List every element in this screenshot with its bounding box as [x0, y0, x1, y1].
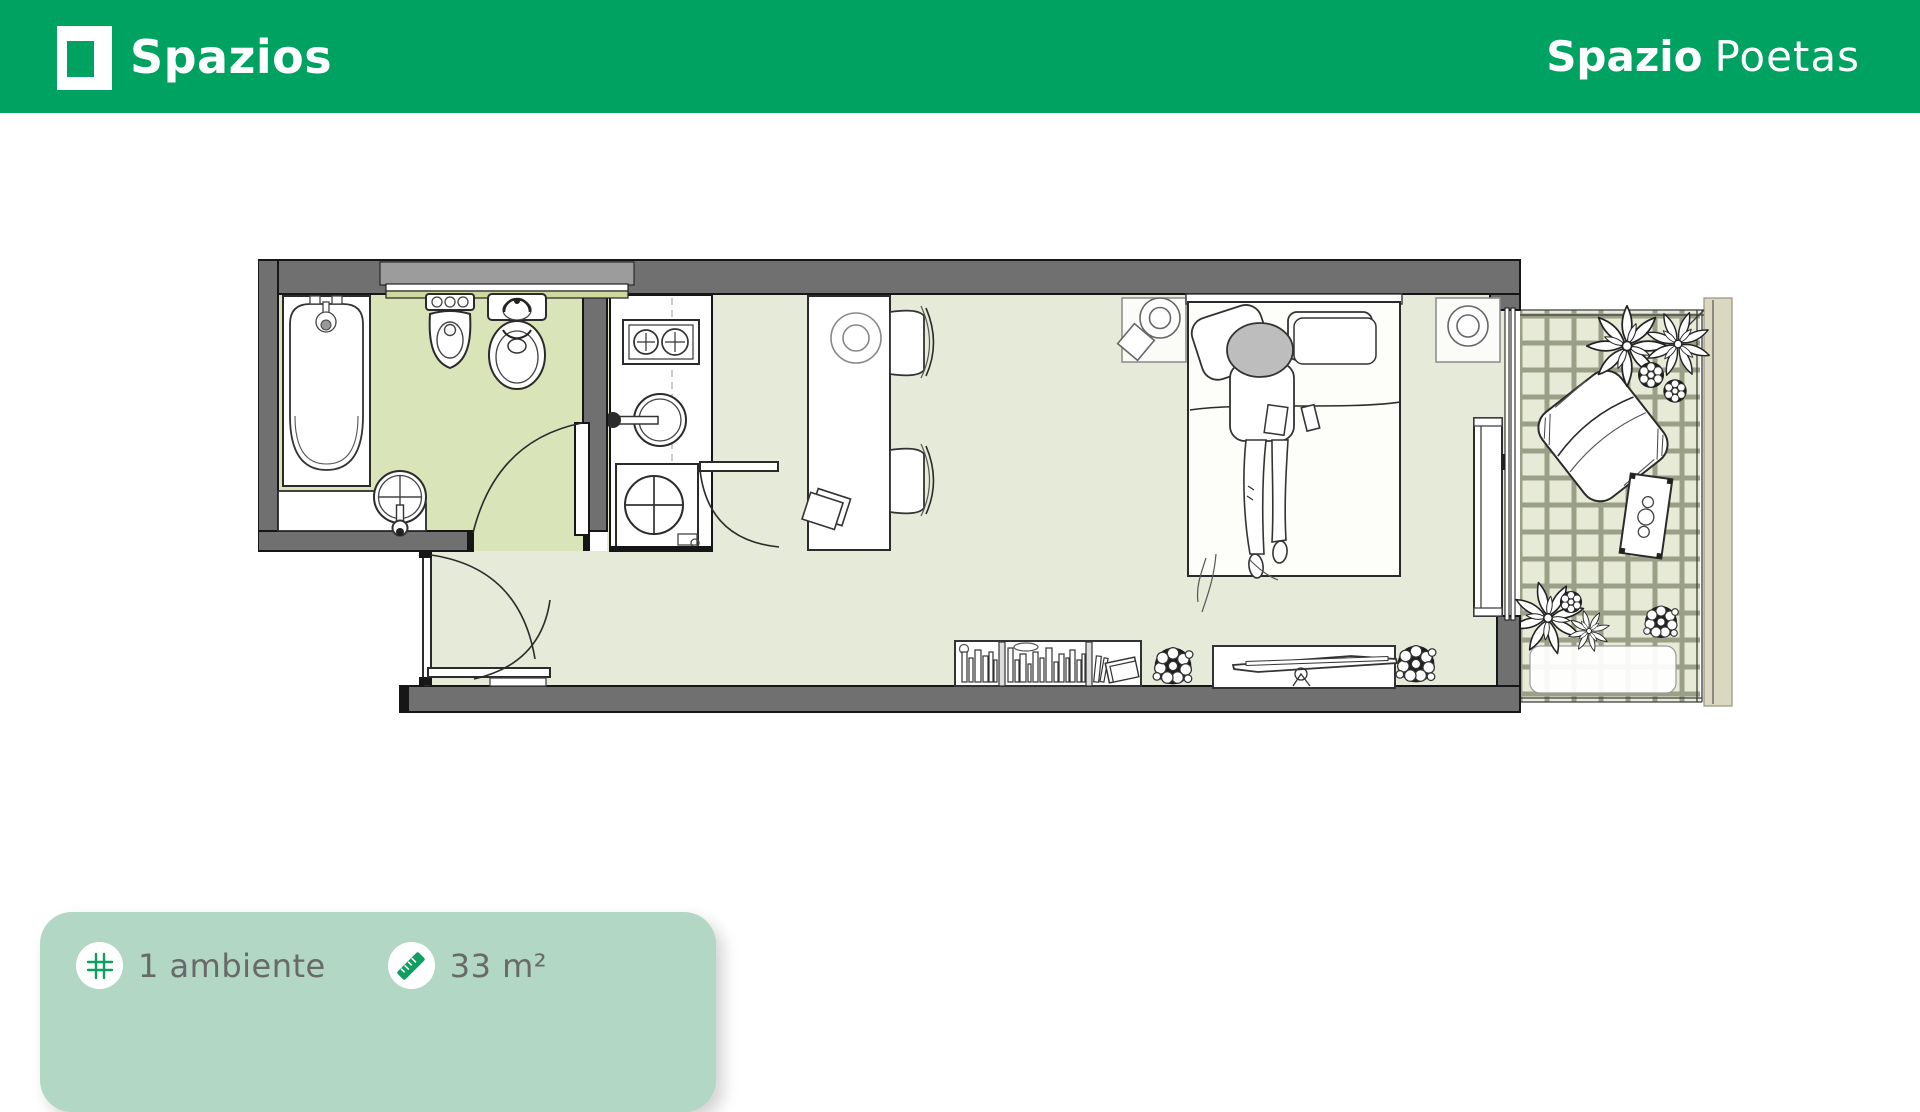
area-info: 33 m²	[388, 942, 547, 989]
header-bar: Spazios Spazio Poetas	[0, 0, 1920, 113]
balcony	[1503, 298, 1732, 706]
pillow-right	[1288, 312, 1376, 364]
wardrobe	[1474, 418, 1502, 616]
spazios-logo-icon	[57, 26, 112, 90]
rooms-label: 1 ambiente	[138, 947, 326, 985]
project-title-bold: Spazio	[1546, 32, 1702, 81]
stove	[623, 320, 699, 364]
brand-name: Spazios	[130, 0, 332, 113]
washing-machine	[616, 464, 699, 548]
entry-partition	[423, 551, 431, 686]
bathroom-door-threshold	[473, 531, 583, 551]
balcony-outer-edge	[1704, 298, 1732, 706]
bathtub	[283, 296, 370, 486]
floor-plan	[258, 258, 1738, 716]
bathroom-window	[380, 262, 634, 298]
plant	[1153, 648, 1193, 685]
rooms-info: 1 ambiente	[76, 942, 326, 989]
ruler-icon	[388, 942, 435, 989]
area-label: 33 m²	[450, 947, 547, 985]
project-title-regular: Poetas	[1715, 32, 1860, 81]
summary-card: 1 ambiente 33 m²	[40, 912, 716, 1112]
project-title: Spazio Poetas	[1546, 0, 1860, 113]
tv-console	[1213, 646, 1397, 688]
bookshelf	[955, 641, 1141, 686]
toilet	[488, 294, 546, 389]
balcony-rug	[1530, 646, 1676, 693]
plant	[1396, 646, 1436, 683]
grid-icon	[76, 942, 123, 989]
plate	[831, 313, 881, 363]
